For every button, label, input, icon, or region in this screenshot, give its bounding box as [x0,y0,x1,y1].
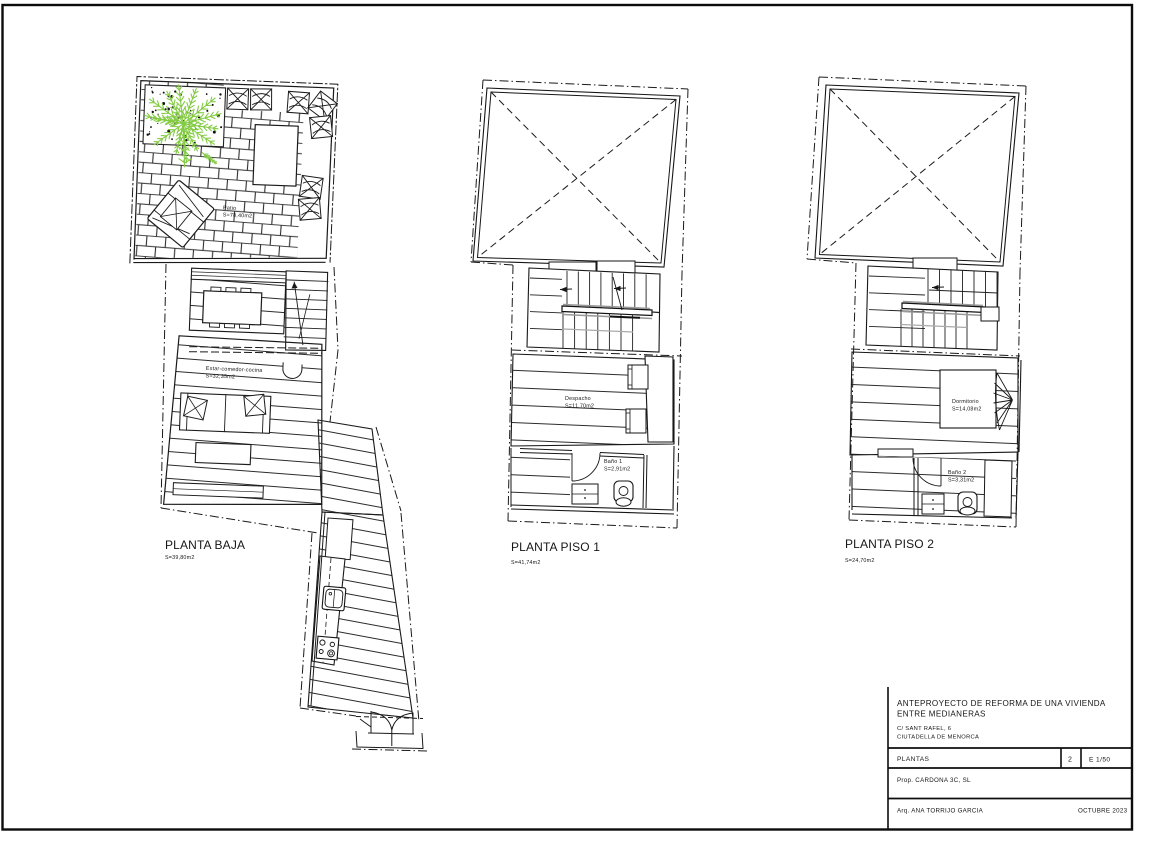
svg-text:S=39,80m2: S=39,80m2 [165,555,195,561]
svg-text:Despacho: Despacho [565,396,591,402]
svg-text:Dormitorio: Dormitorio [952,399,979,405]
svg-text:PLANTA PISO 1: PLANTA PISO 1 [511,540,600,554]
svg-text:PLANTAS: PLANTAS [897,756,930,763]
svg-text:Baño 2: Baño 2 [948,470,966,476]
svg-text:ANTEPROYECTO DE REFORMA DE UNA: ANTEPROYECTO DE REFORMA DE UNA VIVIENDA [897,699,1106,708]
svg-text:Arq. ANA TORRIJO GARCIA: Arq. ANA TORRIJO GARCIA [897,808,984,815]
svg-text:E 1/50: E 1/50 [1089,757,1110,764]
svg-text:S=3,31m2: S=3,31m2 [948,478,974,484]
svg-text:S=2,91m2: S=2,91m2 [604,467,630,473]
svg-text:C/ SANT RAFEL, 6: C/ SANT RAFEL, 6 [897,726,951,732]
svg-text:OCTUBRE 2023: OCTUBRE 2023 [1078,808,1128,815]
svg-text:ENTRE MEDIANERAS: ENTRE MEDIANERAS [897,710,986,719]
svg-text:S=14,08m2: S=14,08m2 [952,407,982,413]
svg-text:Patio: Patio [223,205,237,212]
svg-text:S=41,74m2: S=41,74m2 [511,560,541,566]
svg-text:S=32,35m2: S=32,35m2 [205,373,235,380]
svg-text:2: 2 [1068,757,1072,764]
svg-text:Baño 1: Baño 1 [604,459,622,465]
svg-text:PLANTA BAJA: PLANTA BAJA [165,538,245,552]
svg-text:S=24,70m2: S=24,70m2 [845,558,875,564]
svg-text:S=11,70m2: S=11,70m2 [565,404,594,410]
svg-text:CIUTADELLA DE MENORCA: CIUTADELLA DE MENORCA [897,735,979,741]
svg-text:Prop. CARDONA 3C, SL: Prop. CARDONA 3C, SL [897,777,971,784]
svg-text:PLANTA PISO 2: PLANTA PISO 2 [845,537,934,551]
svg-text:S=78,40m2: S=78,40m2 [223,212,253,219]
